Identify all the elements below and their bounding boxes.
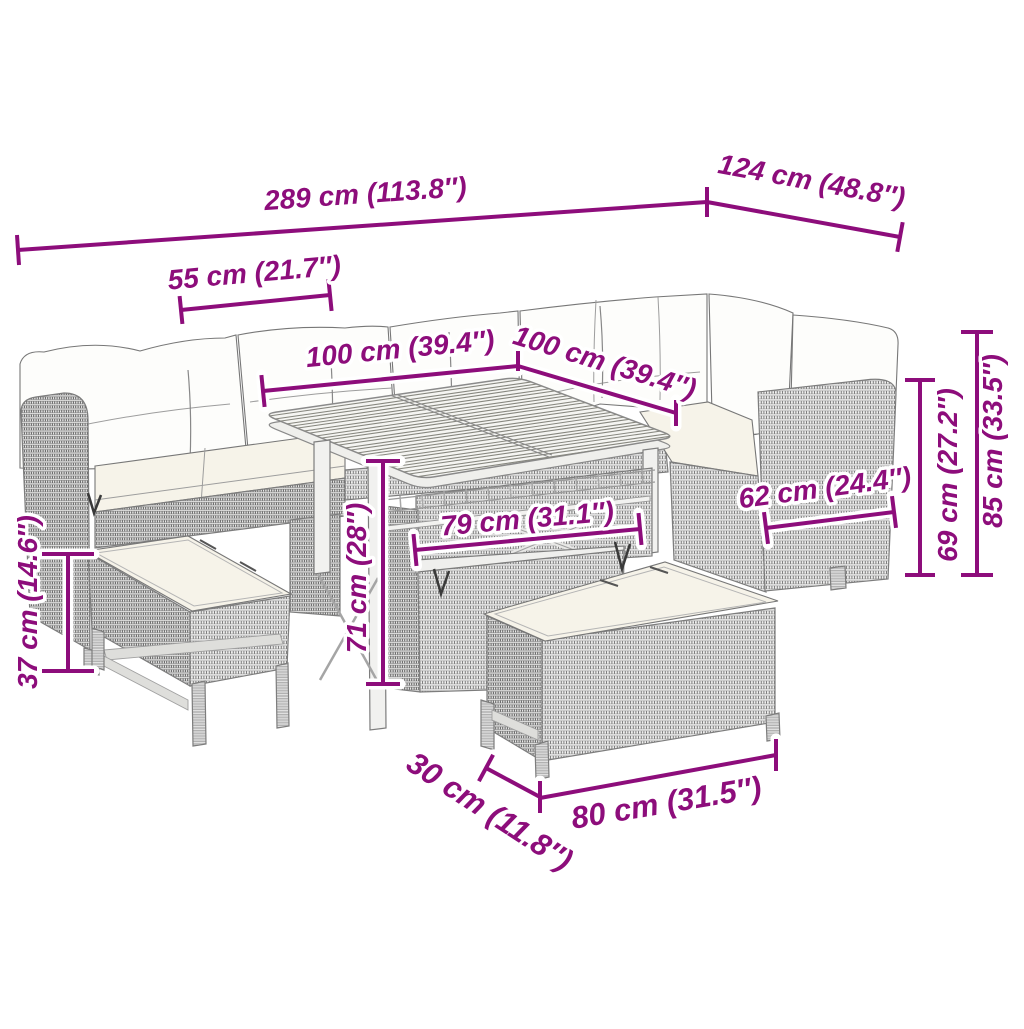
svg-text:69 cm (27.2″): 69 cm (27.2″) — [932, 388, 963, 562]
svg-text:85 cm (33.5″): 85 cm (33.5″) — [977, 354, 1008, 528]
svg-text:71 cm (28″): 71 cm (28″) — [341, 503, 372, 653]
svg-text:37 cm (14.6″): 37 cm (14.6″) — [12, 515, 43, 689]
